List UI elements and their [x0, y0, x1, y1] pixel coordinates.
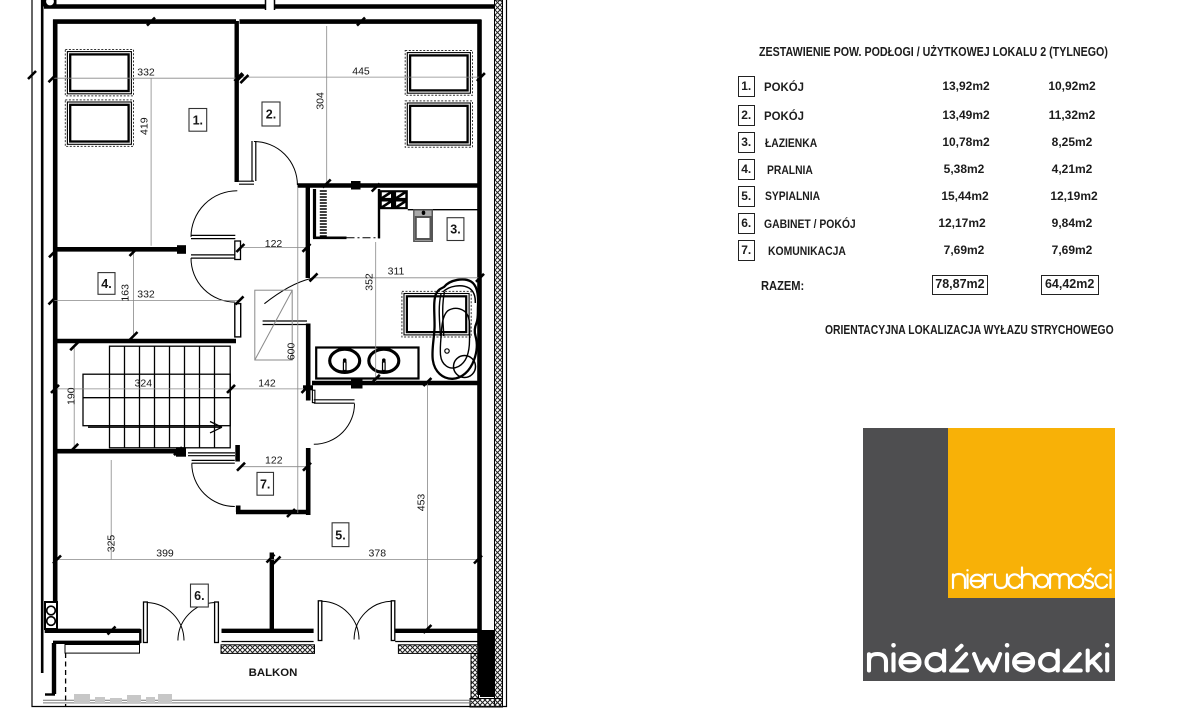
svg-text:332: 332 — [137, 289, 155, 301]
svg-text:122: 122 — [265, 455, 283, 467]
svg-text:4.: 4. — [101, 277, 111, 291]
svg-text:445: 445 — [352, 66, 370, 78]
svg-text:2.: 2. — [266, 108, 276, 122]
svg-text:352: 352 — [364, 273, 376, 291]
svg-text:6.: 6. — [194, 589, 204, 603]
svg-text:1.: 1. — [193, 114, 203, 128]
svg-text:378: 378 — [369, 548, 387, 560]
svg-text:142: 142 — [258, 378, 276, 390]
svg-text:311: 311 — [388, 266, 405, 278]
svg-text:324: 324 — [135, 378, 153, 390]
svg-text:325: 325 — [106, 535, 118, 553]
svg-text:3.: 3. — [450, 223, 460, 237]
svg-text:163: 163 — [120, 284, 132, 302]
svg-text:600: 600 — [286, 342, 298, 360]
svg-text:453: 453 — [416, 494, 428, 512]
svg-text:399: 399 — [156, 548, 174, 560]
svg-text:122: 122 — [265, 238, 283, 250]
svg-text:BALKON: BALKON — [249, 667, 298, 679]
svg-text:7.: 7. — [260, 478, 270, 492]
svg-text:419: 419 — [139, 117, 151, 135]
svg-text:190: 190 — [66, 387, 78, 405]
svg-text:332: 332 — [137, 67, 155, 79]
svg-text:5.: 5. — [335, 529, 345, 543]
svg-text:304: 304 — [315, 92, 327, 110]
